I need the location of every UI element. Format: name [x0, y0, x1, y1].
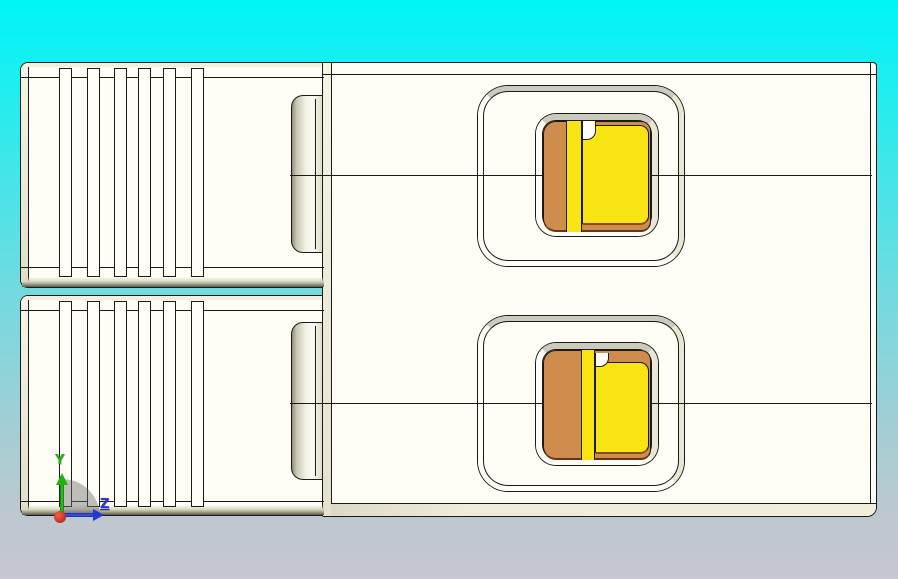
cad-viewport[interactable]: Y Z [0, 0, 898, 579]
cooling-fin [138, 68, 151, 277]
cooling-fin [87, 68, 100, 277]
lower-boss-edge-line [315, 326, 316, 476]
upper-contact-pad-yellow [582, 125, 649, 225]
upper-contact-recess [536, 114, 658, 236]
upper-housing-side-face [21, 63, 29, 287]
upper-cylindrical-boss[interactable] [291, 95, 323, 253]
upper-boss-edge-line [315, 99, 316, 249]
upper-contact-strip-yellow [566, 121, 582, 232]
z-axis-label: Z [100, 497, 109, 512]
x-axis-origin-dot[interactable] [54, 511, 66, 523]
cooling-fin [191, 68, 204, 277]
lower-housing-side-face [21, 296, 29, 515]
lower-contact-strip-yellow [581, 350, 595, 460]
cooling-fin [87, 301, 100, 507]
lower-contact-block[interactable] [543, 350, 651, 460]
face-plate-right-edge-line [870, 63, 871, 516]
cooling-fin [191, 301, 204, 507]
upper-housing-bottom-bevel [22, 277, 324, 287]
cooling-fin [59, 68, 72, 277]
upper-housing-body[interactable] [20, 62, 325, 288]
z-axis-arrow[interactable] [63, 513, 94, 517]
face-plate-top-edge-line [323, 74, 876, 75]
cooling-fin [163, 301, 176, 507]
lower-contact-pad-yellow [595, 362, 649, 454]
cooling-fin [114, 301, 127, 507]
face-plate-side-face [323, 63, 332, 516]
cooling-fin [163, 68, 176, 277]
upper-housing-top-face [28, 63, 324, 67]
face-plate-bottom-face [331, 503, 876, 516]
upper-contact-block[interactable] [543, 121, 651, 232]
lower-contact-recess [536, 343, 658, 465]
cooling-fin [114, 68, 127, 277]
cooling-fin [138, 301, 151, 507]
face-plate[interactable] [322, 62, 877, 517]
lower-cylindrical-boss[interactable] [291, 322, 323, 480]
y-axis-label: Y [55, 453, 64, 468]
y-axis-arrowhead-icon [56, 473, 68, 485]
lower-housing-top-face [28, 296, 324, 300]
